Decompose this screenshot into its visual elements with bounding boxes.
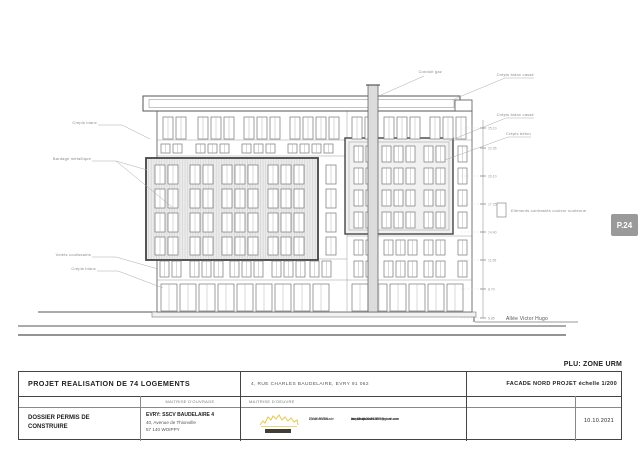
annotation-top-1: Conduit gaz: [418, 69, 442, 74]
moe-contact-phone: tel : 06 48 20 73 02: [351, 417, 378, 422]
sheet-date: 10.10.2021: [575, 418, 623, 424]
moa-header: MAITRISE D'OUVRAGE: [140, 399, 240, 404]
annotation-right-2: Crépis blanc cassé: [497, 112, 535, 117]
drawing-sheet: 25.1022.9520.1017.2514.4011.558.705.85 E…: [0, 0, 640, 452]
elevation-label: 25.10: [488, 126, 497, 130]
legend-label: Eléments contrastés couleur soutenue: [511, 208, 587, 213]
annotation-left-4: Crépis blanc: [71, 266, 96, 271]
titleblock-divider: [19, 396, 621, 397]
flue-stack: [366, 85, 380, 312]
annotation-right-1: Crépis blanc cassé: [497, 72, 535, 77]
moa-address-line1: 40, Avenue de Thionville: [146, 420, 196, 425]
title-block: PROJET REALISATION DE 74 LOGEMENTS 4, RU…: [18, 371, 622, 440]
project-title: PROJET REALISATION DE 74 LOGEMENTS: [28, 379, 190, 388]
annotation-right-3: Crépis béton: [506, 131, 531, 136]
moa-name: EVRY: SSCV BAUDELAIRE 4: [146, 412, 214, 418]
page-badge-label: P.24: [617, 221, 633, 230]
annotation-left-3: Volets coulissants: [56, 252, 91, 257]
elevation-label: 14.40: [488, 230, 497, 234]
moe-address-line2: 75008 PARIS: [309, 417, 328, 422]
titleblock-divider: [466, 372, 467, 441]
plu-note: PLU: ZONE URM: [0, 361, 622, 368]
elevation-label: 20.10: [488, 174, 497, 178]
project-address: 4, RUE CHARLES BAUDELAIRE, EVRY 91 062: [251, 382, 369, 387]
legend-swatch: [497, 203, 506, 217]
moa-address-line2: 57 140 WOIPPY: [146, 427, 180, 432]
moe-header: MAITRISE D'OEUVRE: [249, 399, 295, 404]
annotation-left-1: Crépis blanc: [72, 120, 97, 125]
elevation-label: 5.85: [488, 316, 495, 320]
elevation-label: 11.55: [488, 258, 496, 262]
street-label: Allée Victor Hugo: [506, 316, 548, 322]
elevation-label: 17.25: [488, 202, 497, 206]
facade-drawing: 25.1022.9520.1017.2514.4011.558.705.85 E…: [0, 0, 640, 366]
annotation-left-2: Bardage métallique: [53, 156, 92, 161]
sheet-title: FACADE NORD PROJET échelle 1/200: [469, 381, 623, 387]
elevation-label: 22.95: [488, 146, 497, 150]
dossier-type: DOSSIER PERMIS DE CONSTRUIRE: [28, 414, 92, 432]
titleblock-divider: [240, 372, 241, 441]
page-badge[interactable]: P.24: [611, 214, 638, 236]
roof-band: [143, 96, 472, 111]
architect-logo: [259, 411, 299, 442]
titleblock-divider: [19, 407, 621, 408]
elevation-label: 8.70: [488, 287, 495, 291]
